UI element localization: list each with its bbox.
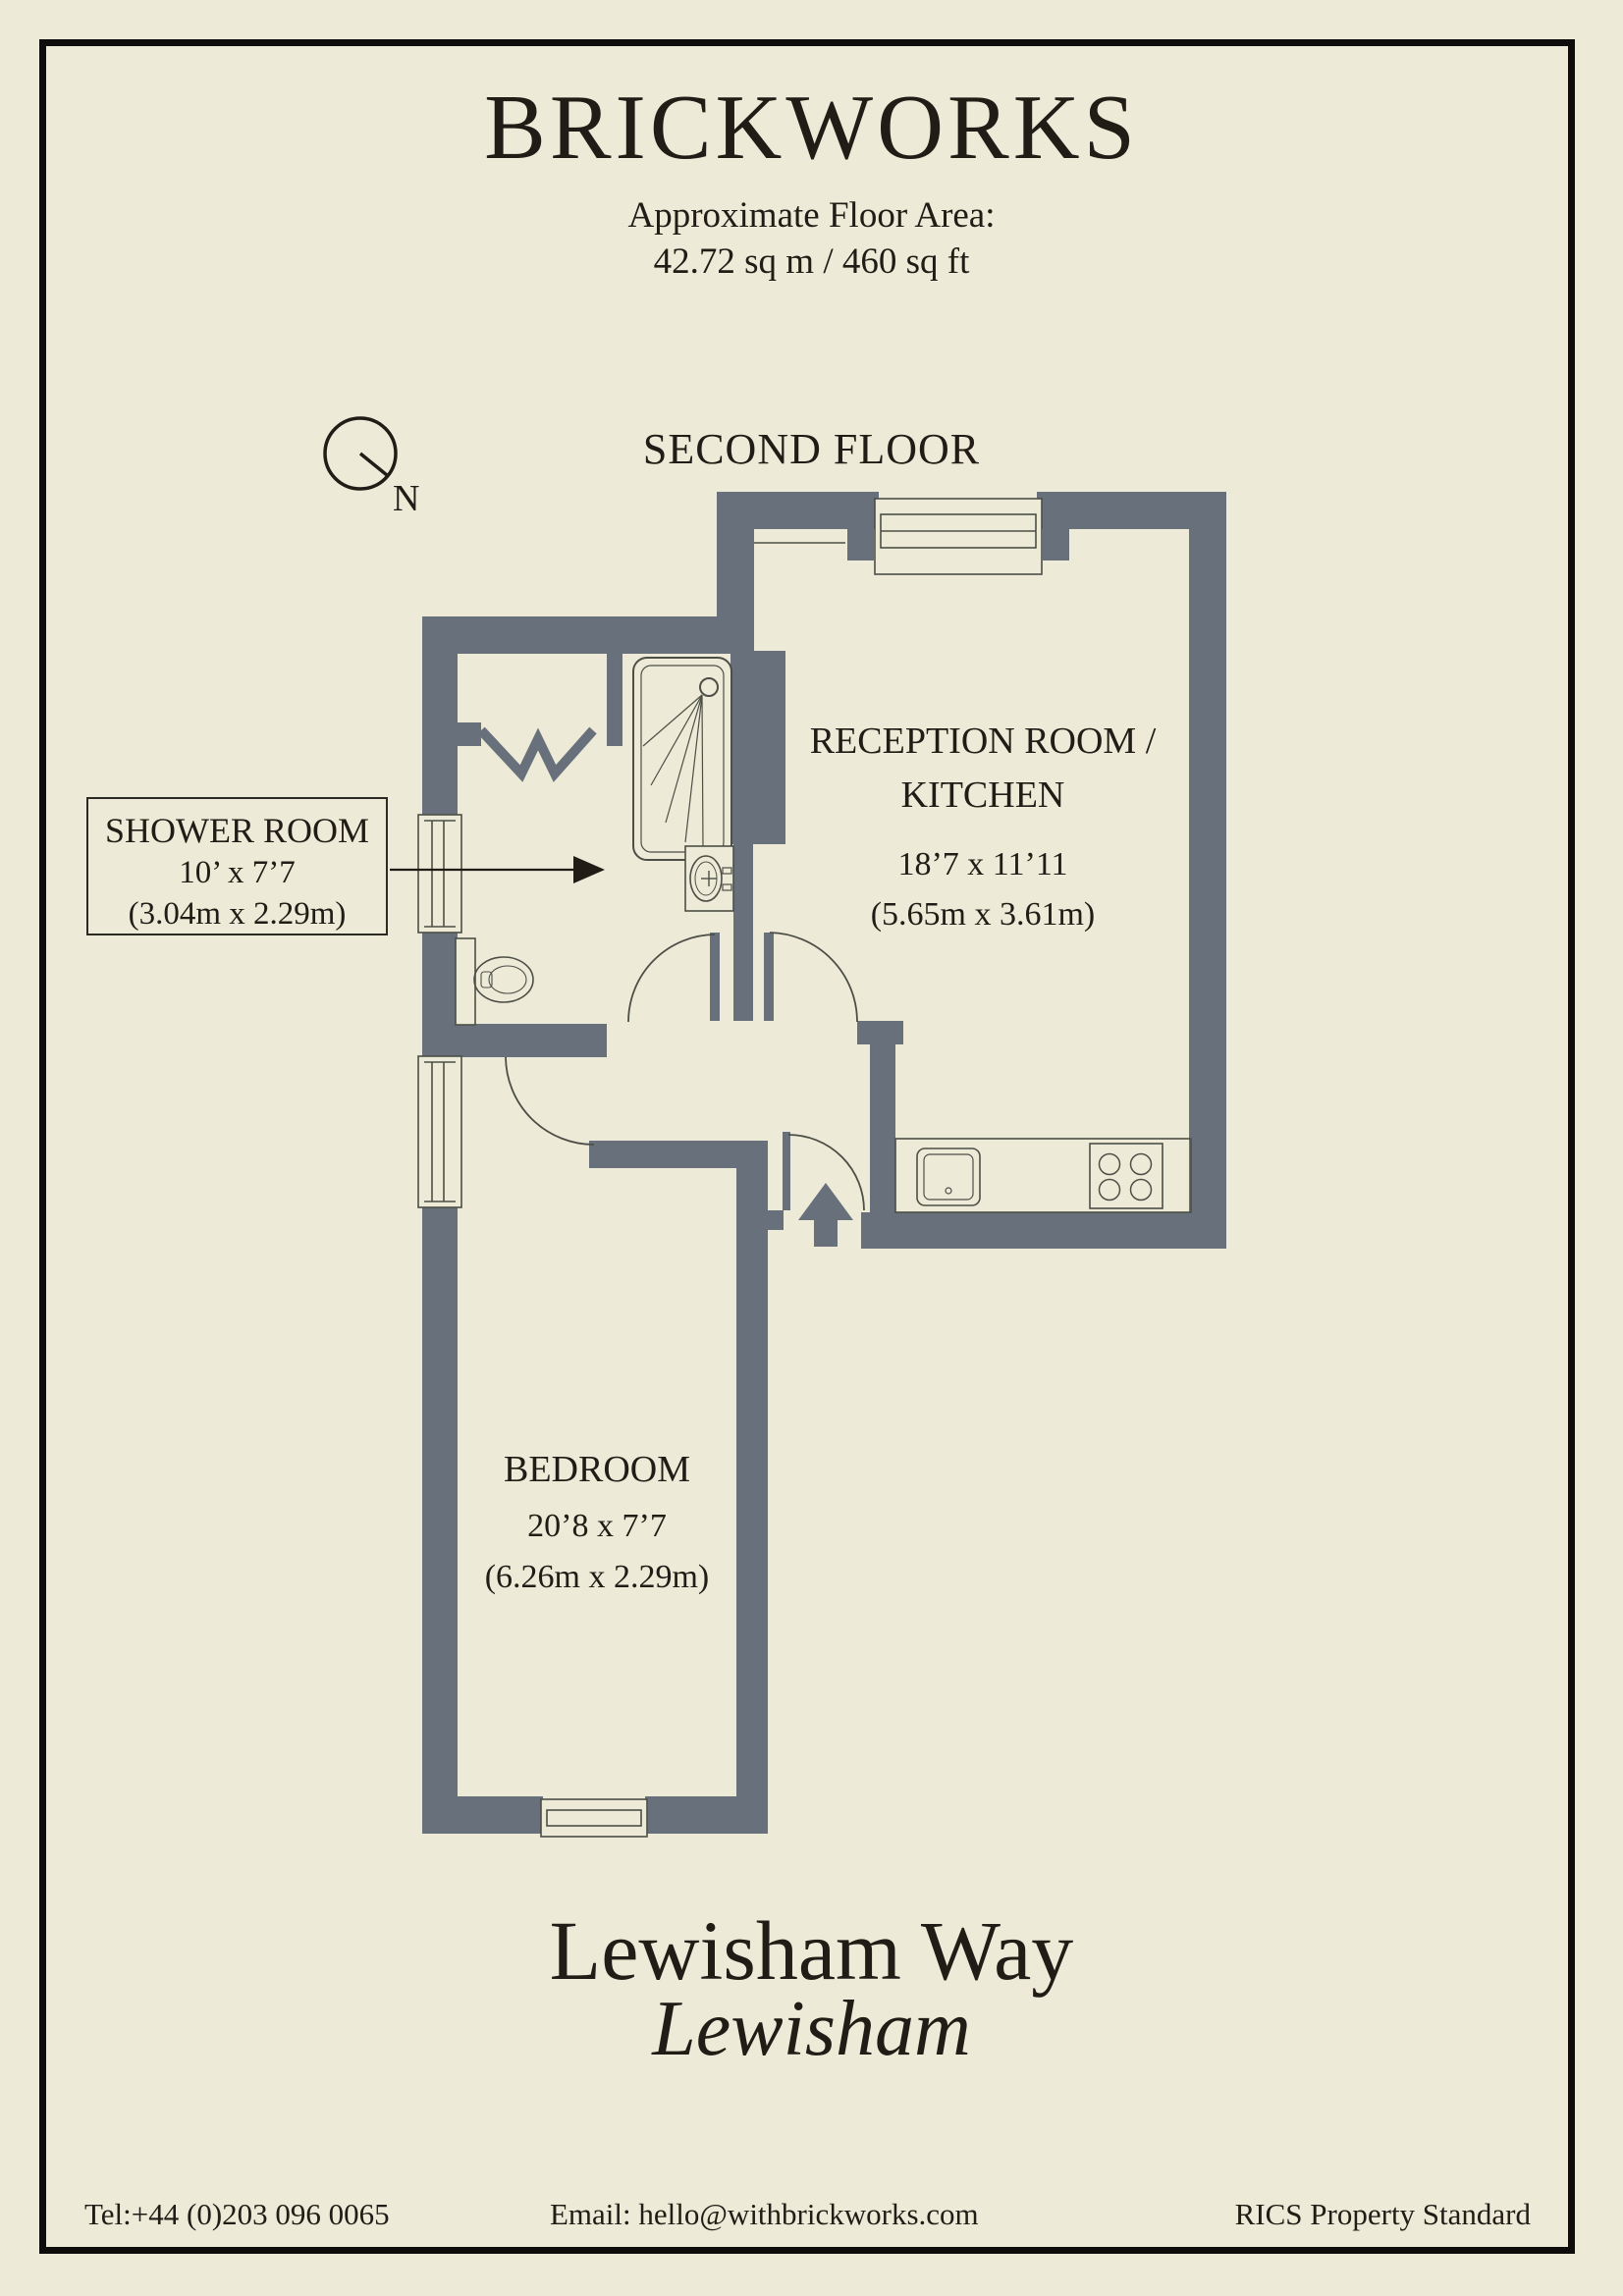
bedroom-dims-imperial: 20’8 x 7’7	[420, 1501, 774, 1552]
basin	[685, 846, 733, 911]
toilet	[456, 938, 533, 1025]
brand-title: BRICKWORKS	[0, 75, 1623, 181]
walls	[422, 492, 1226, 1834]
bedroom-window	[541, 1799, 647, 1837]
kitchen-sink	[917, 1148, 980, 1205]
shower-tray	[633, 658, 731, 860]
hall-window	[418, 1056, 461, 1207]
hob	[1090, 1144, 1163, 1208]
floorplan-page: BRICKWORKS Approximate Floor Area: 42.72…	[0, 0, 1623, 2296]
address-line2: Lewisham	[0, 1985, 1623, 2074]
bifold-door	[481, 730, 593, 774]
bedroom-door-arc	[506, 1057, 594, 1145]
door-arcs	[506, 933, 864, 1210]
reception-name-line2: KITCHEN	[767, 769, 1199, 823]
svg-text:N: N	[393, 478, 419, 519]
bedroom-dims-metric: (6.26m x 2.29m)	[420, 1556, 774, 1599]
reception-name-line1: RECEPTION ROOM /	[767, 715, 1199, 769]
footer-phone: Tel:+44 (0)203 096 0065	[84, 2197, 390, 2232]
footer-email: Email: hello@withbrickworks.com	[550, 2197, 979, 2232]
bedroom-label: BEDROOM 20’8 x 7’7 (6.26m x 2.29m)	[420, 1443, 774, 1599]
shower-window	[418, 815, 461, 933]
shower-dims-imperial: 10’ x 7’7	[88, 852, 386, 893]
shower-dims-metric: (3.04m x 2.29m)	[88, 893, 386, 934]
reception-window	[875, 499, 1042, 574]
reception-dims-metric: (5.65m x 3.61m)	[767, 895, 1199, 934]
kitchen-counter	[895, 1139, 1191, 1212]
reception-door-arc	[770, 933, 857, 1022]
footer-standard: RICS Property Standard	[1235, 2197, 1531, 2232]
bedroom-name: BEDROOM	[420, 1443, 774, 1497]
shower-room-label: SHOWER ROOM 10’ x 7’7 (3.04m x 2.29m)	[86, 797, 388, 935]
floor-area-label: Approximate Floor Area:	[0, 192, 1623, 239]
entrance-arrow-icon	[798, 1183, 853, 1247]
floor-name: SECOND FLOOR	[0, 424, 1623, 474]
reception-dims-imperial: 18’7 x 11’11	[767, 834, 1199, 895]
reception-room-label: RECEPTION ROOM / KITCHEN 18’7 x 11’11 (5…	[767, 715, 1199, 934]
shower-name: SHOWER ROOM	[88, 809, 386, 852]
floor-area-value: 42.72 sq m / 460 sq ft	[0, 239, 1623, 285]
shower-door-arc	[628, 934, 715, 1022]
